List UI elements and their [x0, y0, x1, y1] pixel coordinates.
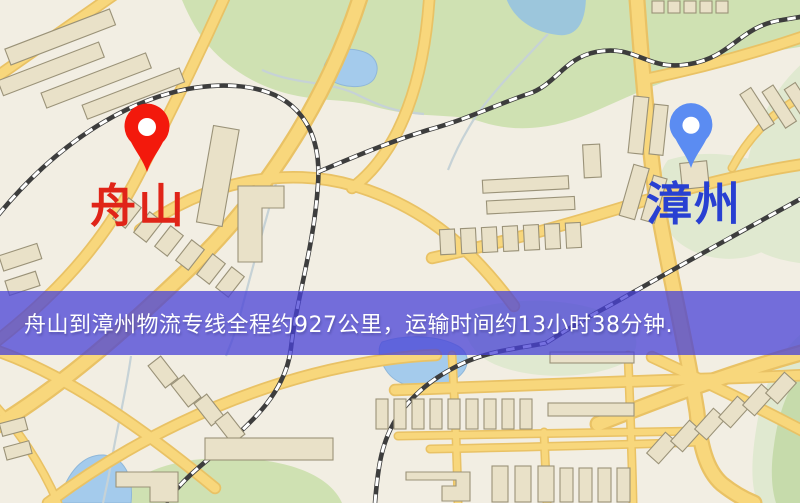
map-canvas[interactable]: 舟山 漳州: [0, 0, 800, 503]
route-info-text: 舟山到漳州物流专线全程约927公里，运输时间约13小时38分钟.: [24, 307, 673, 339]
origin-city-label: 舟山: [90, 179, 186, 233]
destination-city-label: 漳州: [646, 177, 742, 231]
building-long: [205, 438, 333, 460]
destination-pin-hole: [682, 117, 699, 134]
map-screenshot: 舟山 漳州 舟山到漳州物流专线全程约927公里，运输时间约13小时38分钟.: [0, 0, 800, 503]
origin-pin-hole: [138, 118, 156, 136]
building-cluster: [652, 1, 728, 13]
route-info-banner: 舟山到漳州物流专线全程约927公里，运输时间约13小时38分钟.: [0, 291, 800, 355]
